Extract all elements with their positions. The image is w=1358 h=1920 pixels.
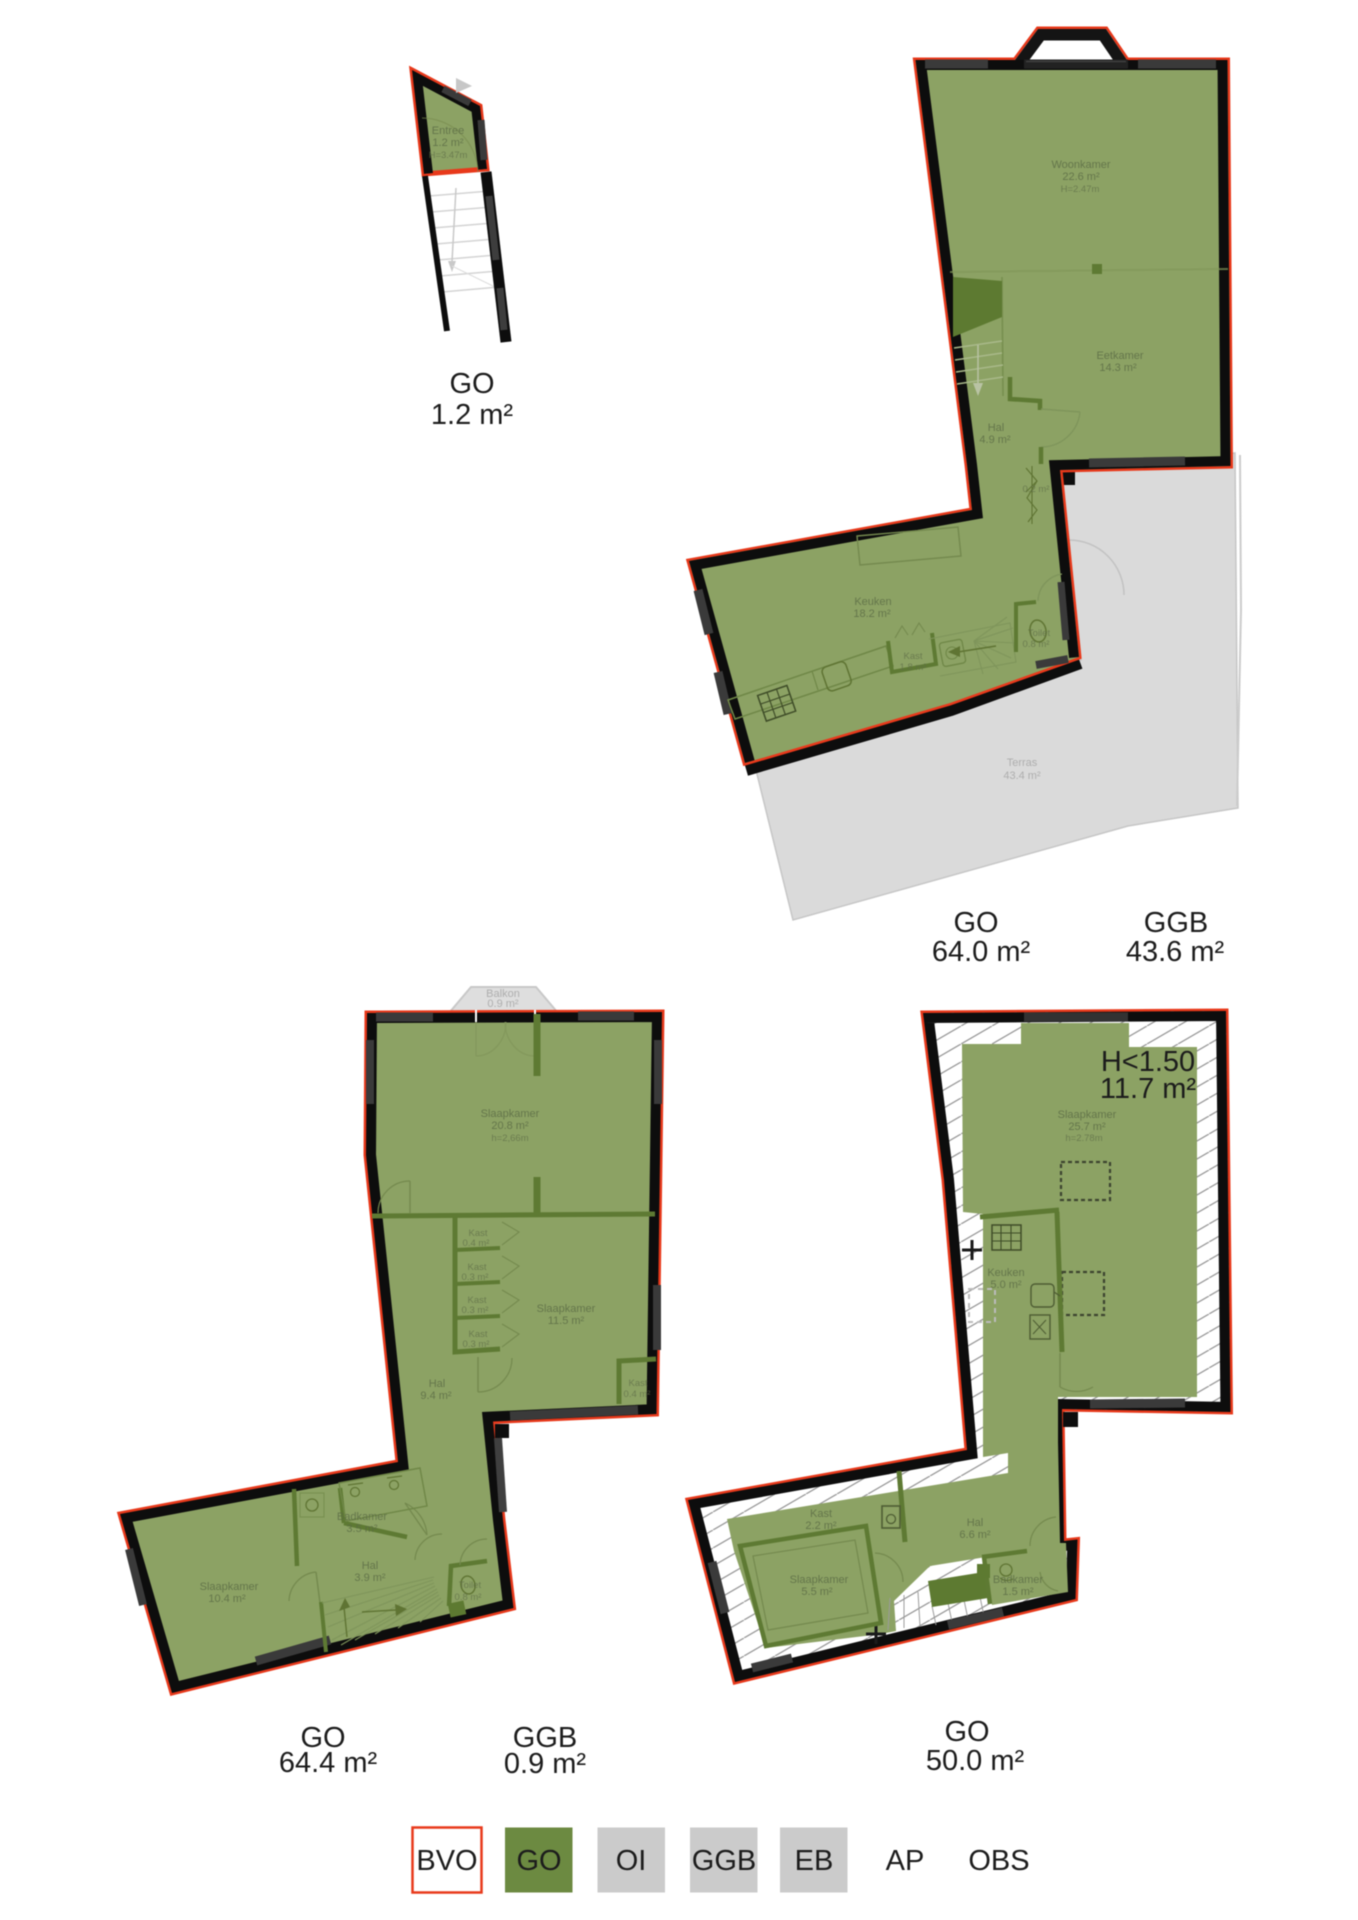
svg-text:Hal: Hal	[988, 422, 1005, 434]
svg-text:Slaapkamer: Slaapkamer	[537, 1303, 596, 1315]
svg-text:H=3.47m: H=3.47m	[429, 150, 468, 161]
svg-text:25.7 m²: 25.7 m²	[1068, 1121, 1106, 1133]
svg-text:64.4 m²: 64.4 m²	[279, 1747, 378, 1779]
svg-text:0.4 m²: 0.4 m²	[463, 1238, 490, 1249]
svg-text:Kast: Kast	[810, 1508, 832, 1520]
svg-text:GO: GO	[953, 907, 998, 939]
svg-text:Hal: Hal	[362, 1560, 379, 1572]
svg-text:20.8 m²: 20.8 m²	[491, 1120, 529, 1132]
svg-text:11.5 m²: 11.5 m²	[548, 1315, 585, 1327]
svg-text:OI: OI	[616, 1845, 647, 1877]
svg-text:0.4 m²: 0.4 m²	[624, 1389, 651, 1400]
svg-text:3.9 m²: 3.9 m²	[354, 1572, 386, 1584]
svg-text:H=2.47m: H=2.47m	[1061, 184, 1100, 195]
svg-text:64.0 m²: 64.0 m²	[932, 936, 1031, 968]
svg-text:0.2 m²: 0.2 m²	[1023, 484, 1050, 495]
svg-text:0.3 m²: 0.3 m²	[463, 1339, 490, 1350]
svg-text:GO: GO	[516, 1845, 561, 1877]
svg-text:OBS: OBS	[968, 1845, 1029, 1877]
svg-text:0.9 m²: 0.9 m²	[487, 998, 519, 1010]
svg-text:5.5 m²: 5.5 m²	[801, 1586, 833, 1598]
svg-text:10.4 m²: 10.4 m²	[208, 1593, 246, 1605]
svg-text:Slaapkamer: Slaapkamer	[790, 1574, 849, 1586]
svg-text:18.2 m²: 18.2 m²	[853, 608, 891, 620]
svg-text:43.4 m²: 43.4 m²	[1003, 770, 1041, 782]
svg-text:Entree: Entree	[432, 125, 464, 137]
svg-text:1.2 m²: 1.2 m²	[431, 399, 514, 431]
svg-text:5.0 m²: 5.0 m²	[990, 1279, 1022, 1291]
svg-text:Kast: Kast	[628, 1378, 647, 1389]
svg-text:Kast: Kast	[903, 651, 922, 662]
svg-text:Slaapkamer: Slaapkamer	[200, 1581, 259, 1593]
svg-text:GO: GO	[449, 368, 494, 400]
svg-text:AP: AP	[886, 1845, 925, 1877]
svg-text:Slaapkamer: Slaapkamer	[1058, 1109, 1117, 1121]
svg-text:EB: EB	[795, 1845, 834, 1877]
svg-text:Badkamer: Badkamer	[993, 1574, 1043, 1586]
svg-text:11.7 m²: 11.7 m²	[1100, 1073, 1197, 1105]
svg-text:0.8 m²: 0.8 m²	[1023, 639, 1050, 650]
svg-text:Woonkamer: Woonkamer	[1051, 159, 1110, 171]
svg-text:GO: GO	[944, 1716, 989, 1748]
svg-text:h=2.78m: h=2.78m	[1065, 1133, 1102, 1144]
svg-text:0.3 m²: 0.3 m²	[462, 1305, 489, 1316]
svg-text:0.8 m²: 0.8 m²	[455, 1592, 482, 1603]
svg-text:6.6 m²: 6.6 m²	[959, 1529, 991, 1541]
svg-text:4.9 m²: 4.9 m²	[979, 434, 1011, 446]
svg-text:3.5 m²: 3.5 m²	[346, 1523, 378, 1535]
svg-text:Eetkamer: Eetkamer	[1096, 350, 1143, 362]
svg-text:h=2,66m: h=2,66m	[491, 1133, 528, 1144]
svg-text:50.0 m²: 50.0 m²	[926, 1745, 1025, 1777]
svg-text:0.3 m²: 0.3 m²	[462, 1272, 489, 1283]
svg-text:GGB: GGB	[1144, 907, 1208, 939]
svg-text:1.5 m²: 1.5 m²	[1002, 1586, 1034, 1598]
svg-text:1.8 m²: 1.8 m²	[900, 662, 927, 673]
svg-text:Keuken: Keuken	[987, 1267, 1024, 1279]
svg-text:Slaapkamer: Slaapkamer	[481, 1108, 540, 1120]
svg-text:14.3 m²: 14.3 m²	[1099, 362, 1137, 374]
svg-text:9.4 m²: 9.4 m²	[420, 1390, 452, 1402]
svg-text:22.6 m²: 22.6 m²	[1062, 171, 1100, 183]
svg-text:2.2 m²: 2.2 m²	[805, 1520, 837, 1532]
svg-text:0.9 m²: 0.9 m²	[504, 1748, 587, 1780]
svg-text:1.2 m²: 1.2 m²	[432, 137, 464, 149]
svg-text:Hal: Hal	[429, 1378, 446, 1390]
svg-text:Toilet: Toilet	[1028, 628, 1051, 639]
svg-text:Keuken: Keuken	[854, 596, 891, 608]
svg-text:Toilet: Toilet	[459, 1580, 482, 1591]
svg-text:Terras: Terras	[1007, 757, 1038, 769]
svg-text:Badkamer: Badkamer	[337, 1511, 387, 1523]
svg-text:Hal: Hal	[967, 1517, 984, 1529]
svg-text:BVO: BVO	[416, 1845, 477, 1877]
svg-text:GGB: GGB	[692, 1845, 756, 1877]
svg-text:43.6 m²: 43.6 m²	[1126, 936, 1225, 968]
